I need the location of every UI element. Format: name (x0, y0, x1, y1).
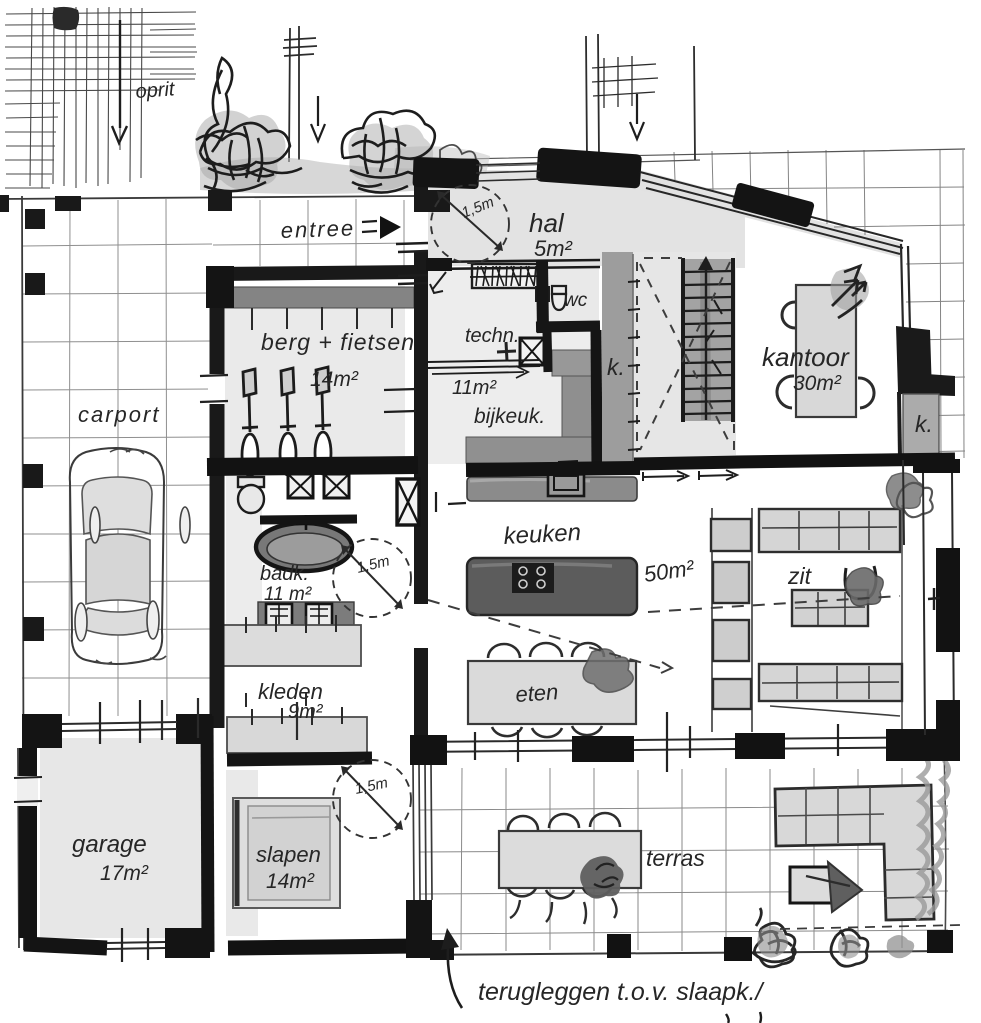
svg-text:keuken: keuken (503, 519, 582, 550)
svg-text:k.: k. (607, 354, 625, 380)
svg-text:11m²: 11m² (452, 377, 497, 399)
svg-text:terugleggen t.o.v. slaapk./: terugleggen t.o.v. slaapk./ (478, 978, 765, 1006)
svg-text:techn..: techn.. (465, 325, 525, 347)
svg-text:30m²: 30m² (793, 372, 842, 395)
svg-text:hal: hal (529, 208, 565, 238)
svg-text:kantoor: kantoor (762, 342, 850, 372)
svg-text:garage: garage (72, 831, 147, 858)
svg-text:eten: eten (515, 679, 559, 707)
svg-text:entree: entree (280, 215, 355, 243)
svg-text:slapen: slapen (256, 842, 321, 867)
svg-text:11 m²: 11 m² (264, 584, 312, 605)
svg-text:k.: k. (915, 411, 933, 437)
svg-text:berg + fietsen: berg + fietsen (261, 329, 415, 355)
svg-text:badk.: badk. (260, 563, 309, 585)
svg-text:oprit: oprit (135, 78, 177, 103)
svg-text:14m²: 14m² (310, 368, 359, 391)
svg-text:9m²: 9m² (288, 701, 324, 723)
svg-text:bijkeuk.: bijkeuk. (474, 405, 545, 428)
svg-text:terras: terras (646, 845, 705, 871)
svg-text:carport: carport (78, 402, 160, 427)
svg-text:wc: wc (564, 290, 588, 311)
svg-text:17m²: 17m² (100, 862, 149, 885)
svg-text:zit: zit (787, 563, 813, 589)
svg-text:5m²: 5m² (534, 236, 573, 261)
svg-text:14m²: 14m² (266, 870, 315, 893)
